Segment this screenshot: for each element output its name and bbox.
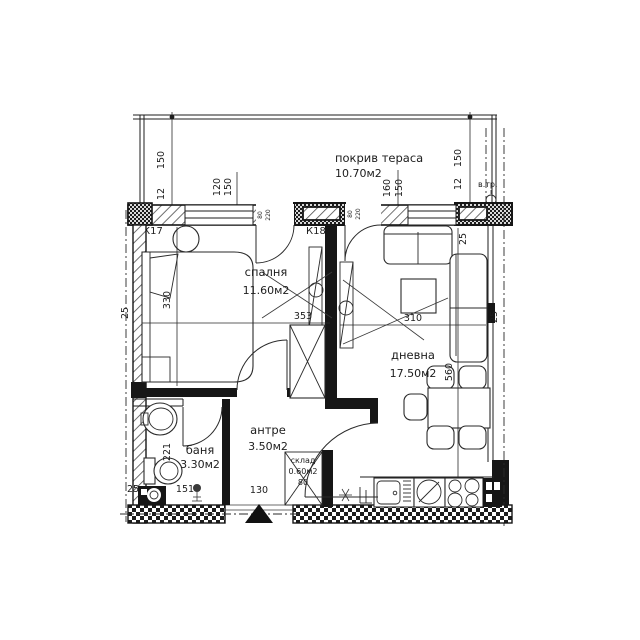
terrace-area: 10.70м2 <box>335 167 382 180</box>
coffee-table <box>401 279 436 313</box>
bedroom-depth-dim: 330 <box>162 291 173 309</box>
dim-25-left: 25 <box>120 307 131 319</box>
wardrobe <box>290 325 325 398</box>
hall-name: антре <box>250 423 286 437</box>
bathroom-door <box>183 407 222 446</box>
bath-width-dim: 151 <box>176 484 194 495</box>
door2-height-label: 220 <box>355 208 362 220</box>
bath-area: 3.30м2 <box>180 458 220 471</box>
bedroom-window <box>185 205 253 225</box>
door1-height-label: 220 <box>265 209 272 221</box>
dining-chair <box>459 366 486 389</box>
bedroom-width-dim: 353 <box>294 311 312 322</box>
storage-width-dim: 80 <box>298 478 308 487</box>
terrace-label: покрив тераса 10.70м2 <box>335 151 423 180</box>
top-exterior-wall: 80 220 80 220 <box>128 203 512 226</box>
bedroom: спалня 11.60м2 353 330 <box>142 226 332 398</box>
storage-area: 0.60м2 <box>289 467 318 476</box>
floor-plan-drawing: покрив тераса 10.70м2 150 12 120 150 160… <box>0 0 640 640</box>
washing-machine <box>138 486 166 505</box>
living-width-dim: 310 <box>404 313 422 324</box>
dim-25-bottom-left: 25 <box>127 484 139 495</box>
stove <box>445 478 483 507</box>
vent-label: в.тр. <box>478 180 498 189</box>
bedroom-area: 11.60м2 <box>243 284 290 297</box>
living-terrace-door <box>345 225 381 261</box>
dim-12-right: 12 <box>453 178 464 190</box>
hall-area: 3.50м2 <box>248 440 288 453</box>
storage-name: склад <box>291 456 316 465</box>
fridge <box>483 478 502 507</box>
dining-table <box>428 388 490 428</box>
terrace-dimensions: 150 12 120 150 160 150 150 12 <box>156 112 472 205</box>
bed <box>142 252 253 382</box>
kitchen-sink <box>374 478 414 507</box>
storage: склад 0.60м2 80 <box>285 452 322 505</box>
dining-chair <box>427 426 454 449</box>
hall-width-dim: 130 <box>250 485 268 496</box>
bedroom-name: спалня <box>245 265 288 279</box>
dim-120: 120 <box>212 178 223 196</box>
kitchen-hob-symbol <box>414 478 445 507</box>
dining-armchair <box>404 394 427 420</box>
kitchen-faucet-icon <box>360 487 372 503</box>
terrace-name: покрив тераса <box>335 151 423 165</box>
bath-name: баня <box>186 443 215 457</box>
living-name: дневна <box>391 348 435 362</box>
bedroom-terrace-door <box>256 225 294 263</box>
drain-asterisk-symbol <box>339 489 352 501</box>
door2-width-label: 80 <box>347 210 354 218</box>
entrance-arrow <box>245 504 273 523</box>
bath-depth-dim: 221 <box>162 443 173 461</box>
dim-150-b: 150 <box>394 179 405 197</box>
dim-150-right: 150 <box>453 149 464 167</box>
dim-25-top-right: 25 <box>458 233 469 245</box>
dim-150-left: 150 <box>156 151 167 169</box>
dim-25-right: 25 <box>489 311 500 323</box>
kitchen <box>339 477 502 507</box>
living-window <box>408 205 456 225</box>
terrace-railing <box>133 115 497 205</box>
living-room: дневна 17.50м2 310 560 <box>339 226 490 503</box>
floor-plan-page: покрив тераса 10.70м2 150 12 120 150 160… <box>0 0 640 640</box>
living-depth-dim: 560 <box>444 363 455 381</box>
living-area: 17.50м2 <box>390 367 437 380</box>
dim-160: 160 <box>382 179 393 197</box>
dim-12-left: 12 <box>156 188 167 200</box>
living-radiator <box>339 262 448 348</box>
dining-chair <box>459 426 486 449</box>
vent-pipe-marker: в.тр. <box>478 180 498 205</box>
door1-width-label: 80 <box>257 211 264 219</box>
dim-150-a: 150 <box>223 178 234 196</box>
k18-marker: К18 <box>306 226 326 237</box>
